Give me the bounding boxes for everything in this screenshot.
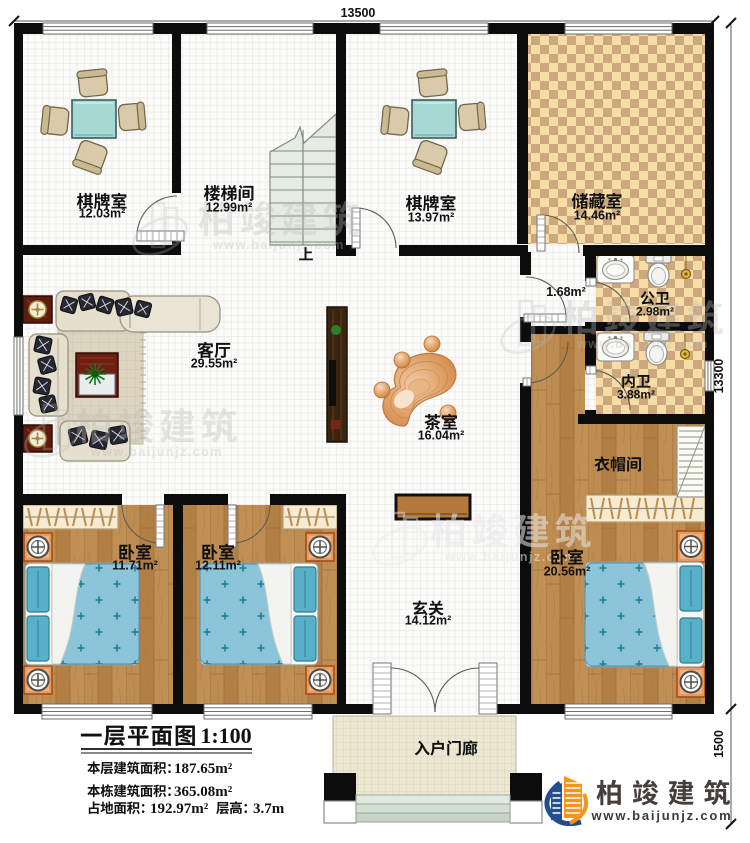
svg-text:12.99m²: 12.99m² (206, 201, 253, 215)
svg-text:www.baijunjz.com: www.baijunjz.com (212, 238, 345, 252)
svg-text:29.55m²: 29.55m² (191, 357, 238, 371)
svg-text:1500: 1500 (712, 730, 726, 758)
svg-text:20.56m²: 20.56m² (544, 565, 591, 579)
svg-text:13300: 13300 (712, 359, 726, 394)
svg-text:12.03m²: 12.03m² (79, 207, 126, 221)
svg-text:www.baijunjz.com: www.baijunjz.com (90, 445, 223, 459)
svg-text:192.97m²: 192.97m² (150, 801, 209, 817)
svg-text:2.98m²: 2.98m² (636, 305, 674, 319)
svg-text:3.88m²: 3.88m² (617, 388, 655, 402)
svg-text:13.97m²: 13.97m² (408, 211, 455, 225)
svg-text:16.04m²: 16.04m² (418, 429, 465, 443)
svg-text:14.46m²: 14.46m² (574, 209, 621, 223)
svg-text:365.08m²: 365.08m² (174, 784, 233, 800)
svg-text:187.65m²: 187.65m² (174, 761, 233, 777)
svg-text:www.baijunjz.com: www.baijunjz.com (576, 337, 709, 351)
svg-text:3.7m: 3.7m (253, 801, 285, 817)
svg-text:www.baijunjz.com: www.baijunjz.com (591, 808, 733, 823)
svg-text:1:100: 1:100 (200, 723, 251, 748)
svg-text:11.71m²: 11.71m² (112, 559, 158, 573)
svg-text:1.68m²: 1.68m² (546, 285, 586, 299)
svg-text:13500: 13500 (341, 6, 376, 20)
svg-text:14.12m²: 14.12m² (405, 614, 452, 628)
svg-text:12.11m²: 12.11m² (195, 559, 241, 573)
